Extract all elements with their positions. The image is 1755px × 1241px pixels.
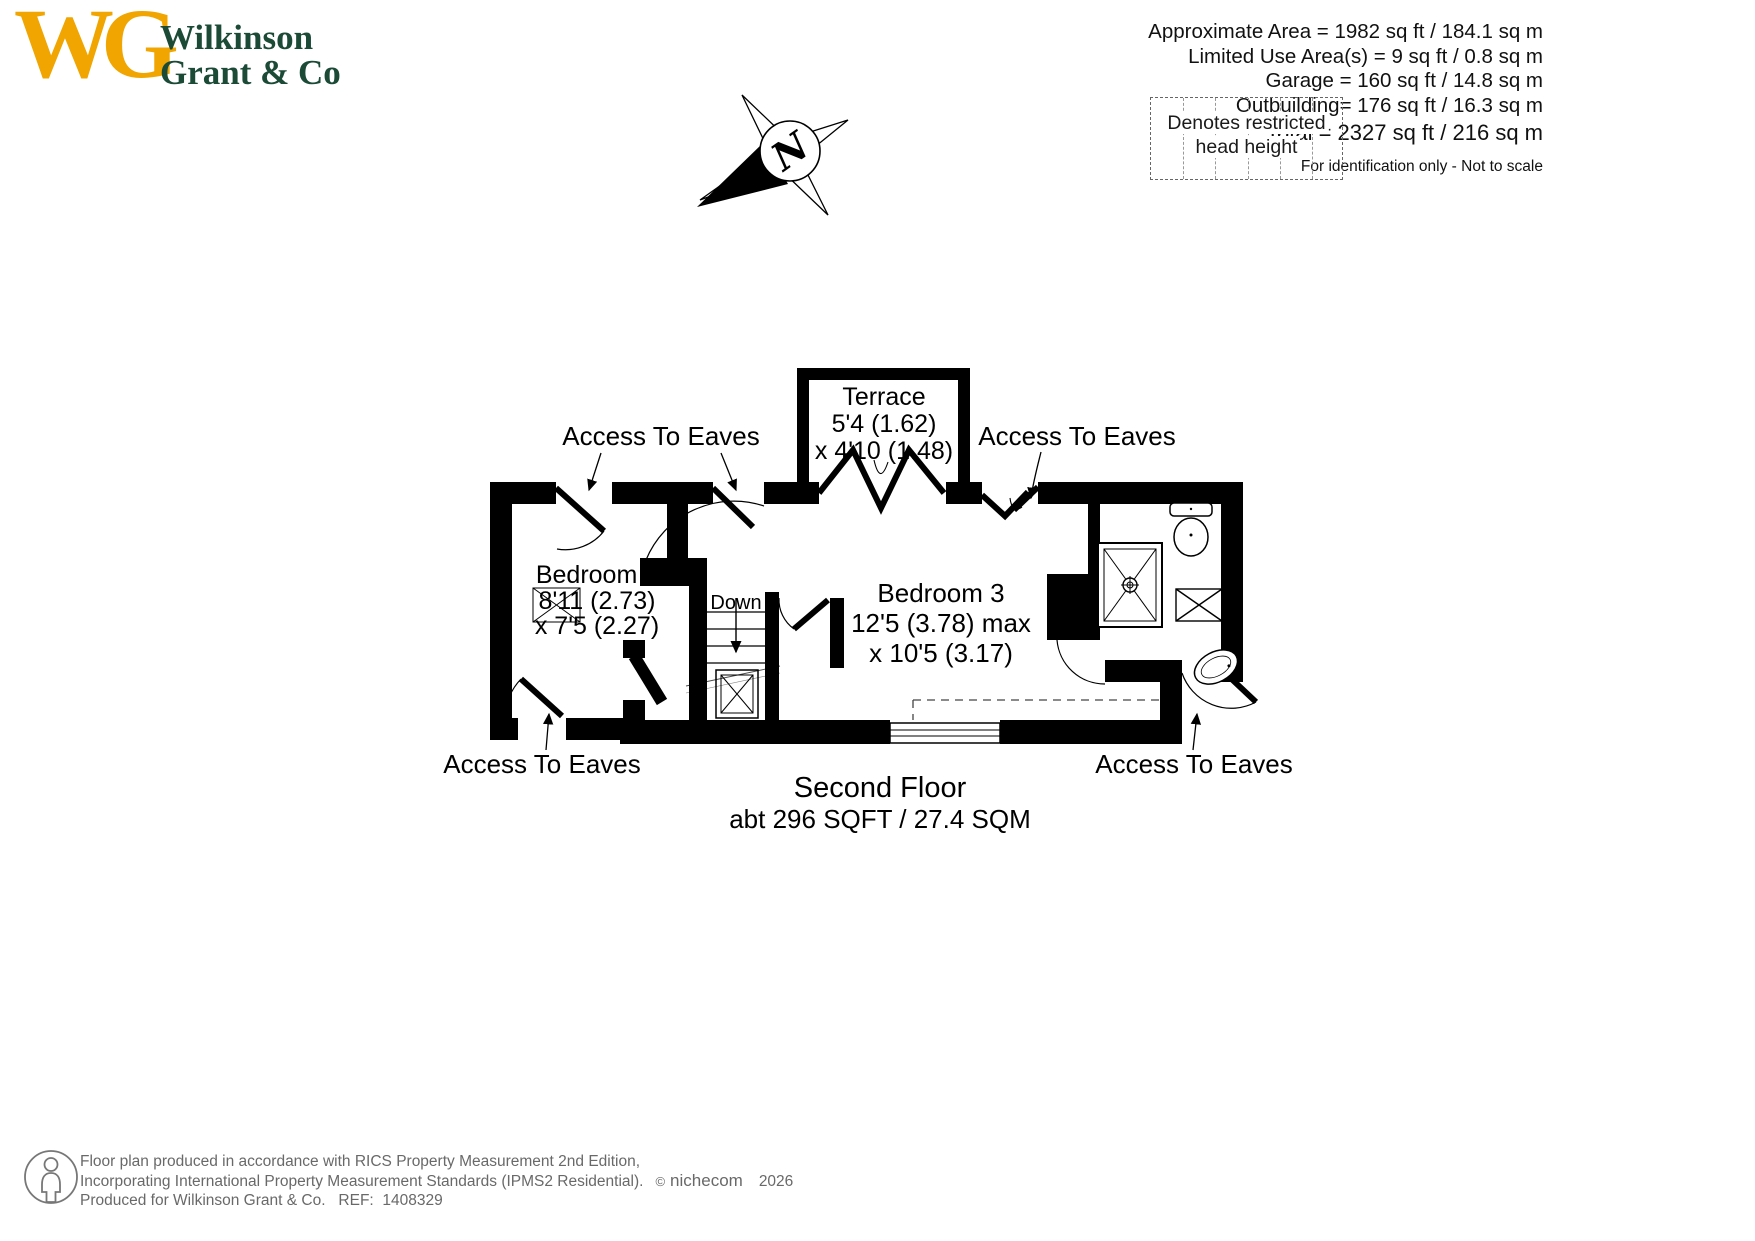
footer-line1: Floor plan produced in accordance with R… xyxy=(80,1152,793,1171)
restricted-area-dashes xyxy=(913,700,1160,720)
terrace-label: Terrace 5'4 (1.62) x 4'10 (1.48) xyxy=(815,384,953,465)
compass-icon: N xyxy=(697,95,848,215)
area-line: Limited Use Area(s) = 9 sq ft / 0.8 sq m xyxy=(1148,45,1543,70)
footer-line3: Produced for Wilkinson Grant & Co. REF: … xyxy=(80,1191,793,1210)
restricted-height-legend: Denotes restricted head height xyxy=(1150,97,1343,180)
bedroom3-label: Bedroom 3 12'5 (3.78) max x 10'5 (3.17) xyxy=(851,578,1031,668)
stairs-skylight xyxy=(716,670,758,718)
shower xyxy=(1098,543,1162,627)
footer-line2: Incorporating International Property Mea… xyxy=(80,1173,643,1190)
footer-year: 2026 xyxy=(759,1173,793,1190)
logo-line1: Wilkinson xyxy=(160,20,341,55)
arrow-access-bottom-left xyxy=(546,714,549,750)
arrow-access-bottom-right xyxy=(1193,714,1197,750)
legend-text-line1: Denotes restricted xyxy=(1164,112,1328,134)
window xyxy=(890,723,1000,743)
bedroom3-name: Bedroom 3 xyxy=(851,578,1031,608)
person-icon xyxy=(22,1148,80,1206)
bedroom5-label: Bedroom 5 8'11 (2.73) x 7'5 (2.27) xyxy=(535,563,659,640)
terrace-dim1: 5'4 (1.62) xyxy=(815,411,953,438)
area-line: Garage = 160 sq ft / 14.8 sq m xyxy=(1148,69,1543,94)
copyright-symbol: © xyxy=(655,1174,665,1189)
stairs-down-label: Down xyxy=(710,592,761,615)
terrace-name: Terrace xyxy=(815,384,953,411)
arrow-access-top-left-1 xyxy=(589,453,601,490)
legend-text-line2: head height xyxy=(1193,136,1301,158)
bedroom5-name: Bedroom 5 xyxy=(535,563,659,589)
bedroom3-dim1: 12'5 (3.78) max xyxy=(851,608,1031,638)
access-to-eaves-label-bottom-left: Access To Eaves xyxy=(443,751,641,778)
nichecom-logo: nichecom xyxy=(670,1171,743,1190)
access-to-eaves-label-bottom-right: Access To Eaves xyxy=(1095,751,1293,778)
floor-title: Second Floor xyxy=(794,772,967,805)
terrace-dim2: x 4'10 (1.48) xyxy=(815,438,953,465)
footer-disclaimer: Floor plan produced in accordance with R… xyxy=(80,1152,793,1210)
area-line: Approximate Area = 1982 sq ft / 184.1 sq… xyxy=(1148,20,1543,45)
bedroom3-dim2: x 10'5 (3.17) xyxy=(851,638,1031,668)
floor-area: abt 296 SQFT / 27.4 SQM xyxy=(729,804,1031,835)
access-to-eaves-label-top-right: Access To Eaves xyxy=(978,423,1176,450)
logo-line2: Grant & Co xyxy=(160,55,341,90)
logo-wordmark: Wilkinson Grant & Co xyxy=(160,20,341,90)
bedroom5-dim1: 8'11 (2.73) xyxy=(535,589,659,615)
access-to-eaves-label-top-left: Access To Eaves xyxy=(562,423,760,450)
bedroom5-dim2: x 7'5 (2.27) xyxy=(535,614,659,640)
toilet xyxy=(1170,503,1212,556)
arrow-access-top-left-2 xyxy=(721,453,736,490)
cupboard xyxy=(1176,589,1222,621)
logo-monogram: WG xyxy=(14,0,166,94)
